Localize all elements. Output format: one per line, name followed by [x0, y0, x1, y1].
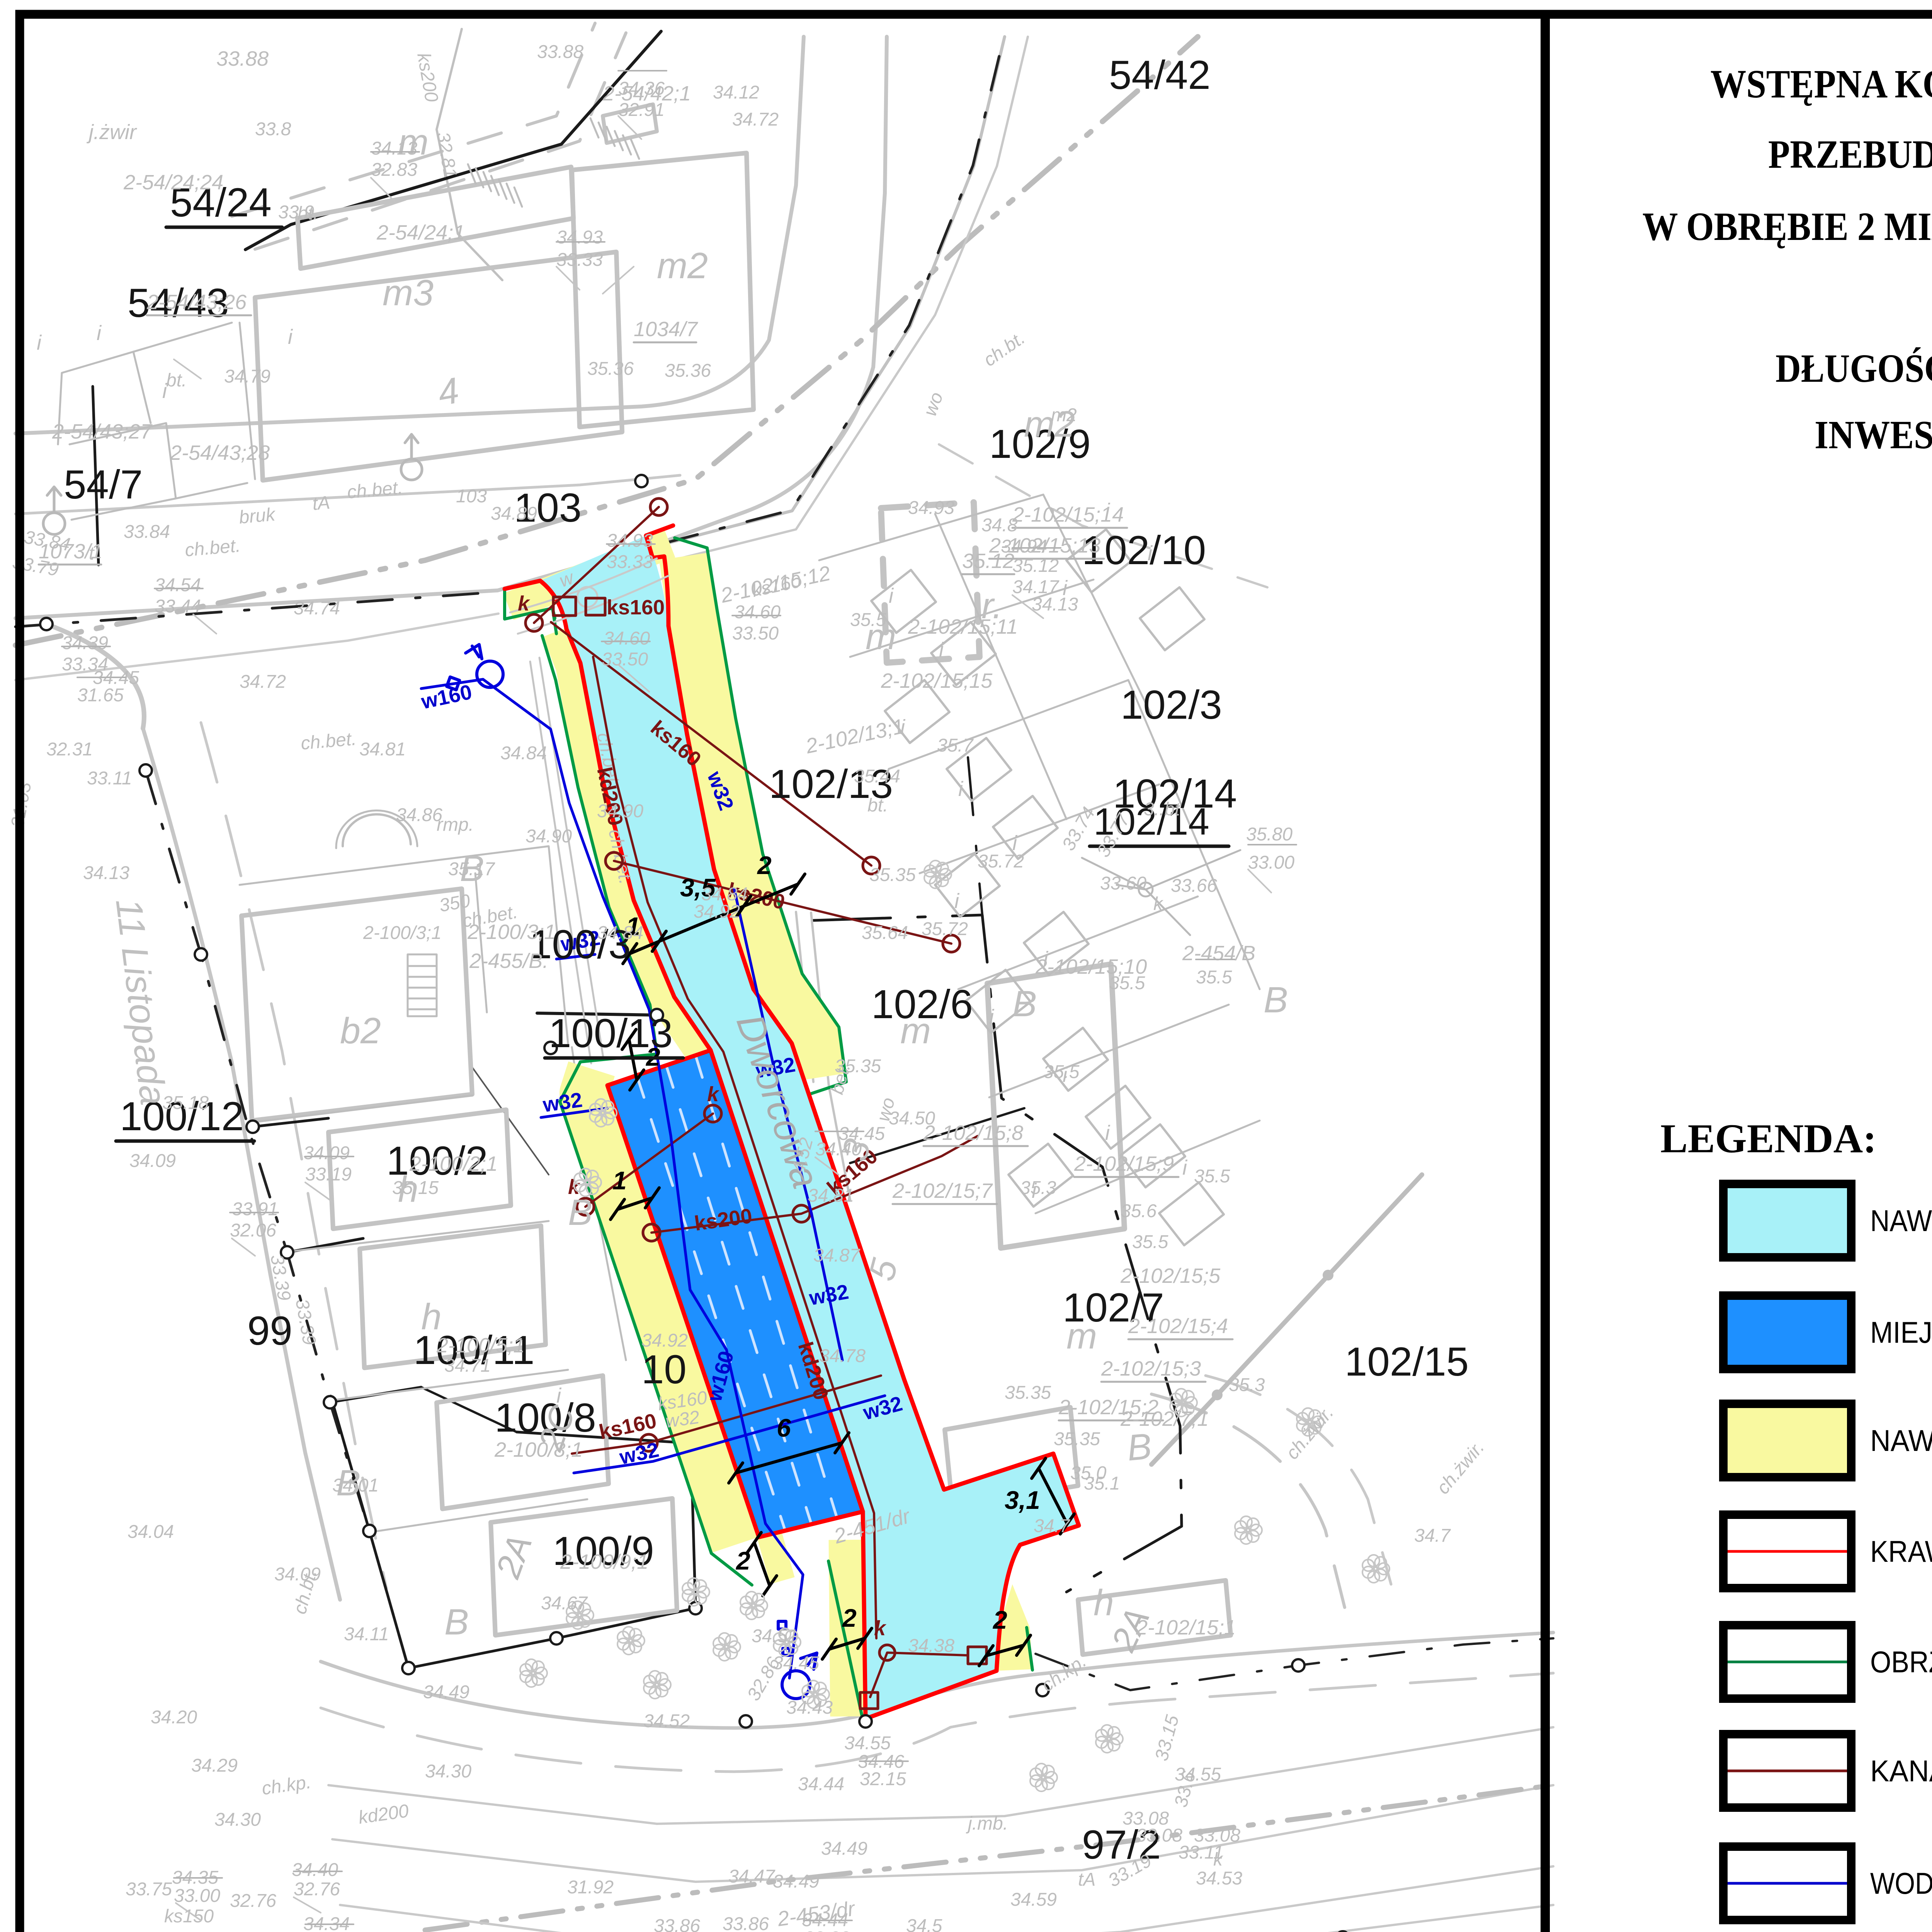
svg-text:33.08: 33.08 — [1136, 1825, 1182, 1846]
svg-text:35.35: 35.35 — [835, 1056, 881, 1077]
svg-text:34.87: 34.87 — [813, 1245, 861, 1266]
svg-text:i: i — [1063, 577, 1068, 600]
svg-text:33.66: 33.66 — [1171, 876, 1217, 896]
svg-text:102/3: 102/3 — [1121, 682, 1222, 728]
svg-text:WODOCIĄG: WODOCIĄG — [1870, 1866, 1932, 1900]
svg-text:33.91: 33.91 — [232, 1199, 278, 1219]
svg-text:34.55: 34.55 — [1175, 1764, 1221, 1785]
svg-text:34.09: 34.09 — [129, 1151, 176, 1171]
svg-text:102/15: 102/15 — [1345, 1339, 1469, 1384]
svg-text:35.12: 35.12 — [1012, 556, 1059, 576]
svg-text:m: m — [900, 1010, 931, 1051]
svg-text:i: i — [954, 889, 960, 913]
svg-text:31.92: 31.92 — [567, 1877, 614, 1898]
svg-text:35.17: 35.17 — [448, 859, 495, 879]
svg-text:33.00: 33.00 — [1248, 852, 1294, 873]
svg-text:33.86: 33.86 — [723, 1914, 769, 1932]
svg-text:54/7: 54/7 — [64, 462, 143, 507]
svg-text:32.06: 32.06 — [230, 1220, 276, 1241]
svg-text:33.33: 33.33 — [607, 552, 653, 572]
svg-text:34.34: 34.34 — [303, 1914, 350, 1932]
svg-text:32.91: 32.91 — [618, 100, 665, 120]
svg-text:32.76: 32.76 — [294, 1879, 340, 1900]
svg-text:m2: m2 — [657, 245, 708, 286]
svg-text:34.92: 34.92 — [641, 1330, 688, 1351]
svg-text:KANALIZACJA DESZCZOWA: KANALIZACJA DESZCZOWA — [1870, 1754, 1932, 1788]
svg-text:2-102/15;11: 2-102/15;11 — [908, 615, 1018, 638]
svg-text:34.89: 34.89 — [491, 503, 537, 524]
svg-text:B: B — [568, 1192, 592, 1233]
svg-text:35.72: 35.72 — [922, 919, 968, 939]
svg-text:2-102/15;3: 2-102/15;3 — [1101, 1357, 1201, 1380]
svg-text:32.83: 32.83 — [371, 160, 417, 180]
svg-text:33.11: 33.11 — [87, 768, 132, 789]
svg-text:b2: b2 — [340, 1010, 381, 1051]
svg-text:33.00: 33.00 — [174, 1886, 220, 1906]
svg-text:2-54/24;1: 2-54/24;1 — [376, 221, 465, 244]
svg-text:35.64: 35.64 — [862, 923, 908, 943]
svg-text:34.29: 34.29 — [191, 1755, 238, 1776]
svg-text:33.88: 33.88 — [537, 42, 583, 62]
svg-text:34.13: 34.13 — [371, 138, 417, 159]
svg-text:35.36: 35.36 — [587, 359, 634, 379]
svg-text:35.35: 35.35 — [869, 865, 916, 885]
svg-text:33.44: 33.44 — [155, 596, 201, 617]
svg-text:34.38: 34.38 — [908, 1636, 954, 1656]
svg-text:34.49: 34.49 — [821, 1838, 867, 1859]
svg-text:34.93: 34.93 — [607, 531, 653, 551]
svg-text:k: k — [874, 1617, 887, 1640]
svg-text:32.15: 32.15 — [860, 1769, 906, 1789]
svg-text:34.04: 34.04 — [128, 1522, 174, 1542]
svg-text:i: i — [939, 638, 944, 662]
svg-text:2-100/9;1: 2-100/9;1 — [560, 1550, 648, 1573]
svg-text:2-102/7;1: 2-102/7;1 — [1120, 1407, 1209, 1430]
svg-text:2-454/B: 2-454/B — [1182, 942, 1255, 965]
svg-text:2-102/15;15: 2-102/15;15 — [881, 669, 993, 692]
svg-text:35.5: 35.5 — [1196, 967, 1232, 988]
svg-text:34.52: 34.52 — [643, 1711, 690, 1731]
svg-text:DŁUGOŚĆ DROGI OK. 65 METRÓW: DŁUGOŚĆ DROGI OK. 65 METRÓW — [1776, 346, 1932, 391]
svg-text:34.8: 34.8 — [981, 515, 1018, 536]
svg-text:2-100/8;1: 2-100/8;1 — [494, 1438, 583, 1461]
svg-text:2-54/43;26: 2-54/43;26 — [146, 291, 247, 314]
svg-text:2-102/15;5: 2-102/15;5 — [1120, 1264, 1221, 1287]
svg-text:m2: m2 — [1051, 405, 1077, 425]
svg-text:i: i — [989, 1005, 995, 1029]
svg-text:34.55: 34.55 — [844, 1733, 891, 1753]
svg-text:i: i — [1032, 1179, 1037, 1202]
svg-text:m3: m3 — [383, 272, 434, 313]
svg-text:35.5: 35.5 — [850, 610, 886, 630]
svg-text:33.60: 33.60 — [1100, 873, 1146, 894]
svg-text:114/3: 114/3 — [1360, 1930, 1459, 1932]
svg-text:35.80: 35.80 — [1246, 824, 1293, 845]
svg-text:1034/7: 1034/7 — [634, 318, 698, 341]
svg-text:bt.: bt. — [867, 795, 888, 816]
svg-text:i: i — [1063, 1063, 1068, 1087]
svg-text:B: B — [1264, 980, 1288, 1020]
svg-text:34.84: 34.84 — [597, 923, 643, 943]
svg-text:34.78: 34.78 — [819, 1346, 866, 1366]
svg-text:33.33: 33.33 — [556, 250, 603, 270]
svg-text:34.30: 34.30 — [425, 1761, 471, 1782]
svg-text:35.5: 35.5 — [1132, 1232, 1168, 1252]
svg-text:tA: tA — [1078, 1869, 1095, 1890]
svg-text:33.88: 33.88 — [216, 47, 269, 70]
svg-text:34.86: 34.86 — [396, 805, 442, 825]
svg-text:rmp.: rmp. — [437, 815, 474, 835]
svg-text:34.94: 34.94 — [1001, 536, 1047, 557]
svg-text:34.93: 34.93 — [556, 227, 603, 248]
svg-text:35.5: 35.5 — [1109, 973, 1145, 993]
svg-text:34.54: 34.54 — [155, 575, 201, 595]
svg-text:34.13: 34.13 — [83, 863, 129, 883]
svg-text:bruk: bruk — [238, 504, 277, 528]
svg-text:t: t — [89, 543, 95, 564]
svg-text:54/42: 54/42 — [1109, 53, 1211, 98]
svg-text:i: i — [889, 584, 894, 607]
svg-text:k: k — [1213, 1849, 1224, 1870]
svg-text:k: k — [707, 1083, 720, 1106]
svg-text:35.36: 35.36 — [665, 361, 711, 381]
svg-text:33.50: 33.50 — [602, 649, 648, 670]
svg-text:34.43: 34.43 — [786, 1697, 833, 1718]
svg-text:KRAWĘŻNIK DROGOWY: KRAWĘŻNIK DROGOWY — [1870, 1534, 1932, 1568]
svg-text:10: 10 — [641, 1347, 687, 1392]
svg-text:34.81: 34.81 — [359, 739, 406, 760]
svg-text:WSTĘPNA KONCEPCJA ZAKRESU ROBÓ: WSTĘPNA KONCEPCJA ZAKRESU ROBÓT — [1711, 62, 1932, 106]
svg-text:tA: tA — [311, 492, 331, 514]
svg-text:2-455/B.: 2-455/B. — [469, 949, 548, 973]
svg-text:ks150: ks150 — [164, 1906, 214, 1927]
svg-text:34.47: 34.47 — [728, 1866, 776, 1887]
svg-text:2-100/3;1: 2-100/3;1 — [363, 923, 442, 943]
svg-text:OBRZEŻE: OBRZEŻE — [1870, 1645, 1932, 1679]
svg-text:34.90: 34.90 — [597, 801, 643, 821]
svg-text:i: i — [1012, 832, 1018, 855]
svg-text:PRZEBUDOWA DROGI POŁOŻONEJ: PRZEBUDOWA DROGI POŁOŻONEJ — [1768, 132, 1932, 177]
svg-text:33.8: 33.8 — [255, 119, 291, 139]
svg-text:34.7: 34.7 — [1414, 1526, 1451, 1546]
svg-text:INWESTOR: GMINA SĘPOPOL: INWESTOR: GMINA SĘPOPOL — [1815, 413, 1932, 457]
svg-text:35.7: 35.7 — [937, 735, 974, 756]
svg-text:i: i — [37, 331, 42, 354]
svg-text:35.35: 35.35 — [1005, 1383, 1051, 1403]
svg-text:34.11: 34.11 — [344, 1624, 389, 1645]
svg-text:34.40: 34.40 — [815, 1139, 862, 1160]
svg-text:2-54/43;27: 2-54/43;27 — [52, 420, 153, 443]
svg-text:34.60: 34.60 — [734, 602, 781, 622]
svg-text:34.39: 34.39 — [62, 633, 108, 653]
svg-text:34.5: 34.5 — [906, 1916, 942, 1932]
svg-text:2-102/15;8: 2-102/15;8 — [923, 1121, 1023, 1145]
svg-text:35.3: 35.3 — [1229, 1375, 1265, 1395]
svg-text:33.84: 33.84 — [124, 522, 170, 542]
svg-text:ks160: ks160 — [607, 596, 665, 619]
svg-text:34.72: 34.72 — [240, 672, 286, 692]
svg-text:34.50: 34.50 — [889, 1108, 935, 1129]
svg-text:34.90: 34.90 — [526, 826, 572, 847]
svg-text:34.60: 34.60 — [604, 628, 650, 649]
svg-text:i: i — [288, 325, 293, 349]
svg-text:34.49: 34.49 — [423, 1682, 469, 1702]
svg-text:i: i — [162, 379, 168, 403]
svg-text:33.19: 33.19 — [305, 1164, 352, 1185]
svg-text:h: h — [1094, 1582, 1114, 1623]
svg-text:B: B — [444, 1602, 469, 1643]
svg-text:2-102/15;9: 2-102/15;9 — [1074, 1152, 1174, 1175]
svg-text:2: 2 — [757, 851, 772, 879]
svg-text:35.5: 35.5 — [1194, 1166, 1230, 1187]
svg-text:2-102/15;1: 2-102/15;1 — [1136, 1616, 1236, 1639]
svg-text:32.76: 32.76 — [230, 1891, 276, 1911]
svg-text:34.49: 34.49 — [773, 1871, 819, 1892]
svg-text:m: m — [1066, 1316, 1097, 1357]
svg-text:33.50: 33.50 — [732, 623, 779, 644]
svg-text:34.84: 34.84 — [701, 884, 748, 905]
svg-text:33.75: 33.75 — [126, 1879, 172, 1900]
svg-text:35.35: 35.35 — [1054, 1429, 1100, 1449]
svg-text:35.44: 35.44 — [854, 766, 900, 787]
svg-text:100/13: 100/13 — [549, 1011, 673, 1056]
svg-text:34.84: 34.84 — [500, 743, 547, 764]
svg-text:103: 103 — [456, 486, 487, 507]
svg-text:2-54/24;24: 2-54/24;24 — [123, 171, 223, 194]
svg-text:3,1: 3,1 — [1005, 1486, 1040, 1514]
svg-text:34.93: 34.93 — [908, 498, 954, 518]
svg-text:i: i — [1148, 542, 1153, 565]
svg-text:34.36: 34.36 — [618, 78, 665, 99]
svg-text:34.71: 34.71 — [444, 1355, 491, 1376]
svg-text:NAWIERZCHNIA CHODNIKA/OPASKI: NAWIERZCHNIA CHODNIKA/OPASKI — [1870, 1423, 1932, 1458]
svg-text:35.1: 35.1 — [1084, 1473, 1120, 1494]
svg-text:i: i — [97, 321, 102, 345]
svg-text:99: 99 — [247, 1308, 293, 1354]
svg-text:2-54/43;28: 2-54/43;28 — [170, 441, 270, 464]
svg-text:34.81: 34.81 — [808, 1185, 854, 1206]
svg-text:34.67: 34.67 — [541, 1593, 588, 1614]
svg-text:h: h — [421, 1296, 442, 1337]
svg-text:3..bt: 3..bt — [1144, 799, 1180, 820]
svg-text:LEGENDA:: LEGENDA: — [1660, 1116, 1877, 1161]
svg-text:34.44: 34.44 — [798, 1774, 844, 1794]
svg-text:6: 6 — [777, 1413, 791, 1442]
svg-text:B: B — [1012, 983, 1037, 1024]
svg-text:34.13: 34.13 — [1032, 594, 1078, 615]
svg-text:2: 2 — [735, 1546, 750, 1575]
svg-text:34.20: 34.20 — [151, 1707, 197, 1728]
svg-text:35.15: 35.15 — [580, 1930, 626, 1932]
svg-text:35.6: 35.6 — [1121, 1201, 1157, 1221]
svg-text:j.mb.: j.mb. — [966, 1813, 1008, 1834]
svg-text:34.72: 34.72 — [732, 109, 779, 130]
svg-text:i: i — [900, 716, 906, 739]
svg-text:j.żwir: j.żwir — [86, 121, 137, 144]
svg-text:34.74: 34.74 — [294, 598, 340, 619]
svg-text:35.3: 35.3 — [1020, 1178, 1056, 1198]
svg-text:34.12: 34.12 — [713, 82, 759, 103]
svg-text:i: i — [1105, 1121, 1111, 1145]
svg-text:k: k — [518, 592, 531, 615]
svg-text:35.18: 35.18 — [162, 1093, 209, 1113]
svg-text:32.31: 32.31 — [46, 739, 93, 760]
svg-text:32.22: 32.22 — [804, 1928, 850, 1932]
svg-text:B: B — [1126, 1426, 1153, 1469]
svg-text:i: i — [1105, 499, 1111, 522]
svg-text:33.86: 33.86 — [654, 1916, 700, 1932]
svg-text:bt.: bt. — [298, 203, 318, 224]
svg-text:NAWIERZCHNIA DROGI: NAWIERZCHNIA DROGI — [1870, 1204, 1932, 1238]
svg-text:35.5: 35.5 — [1043, 1062, 1080, 1082]
svg-text:i: i — [1182, 1156, 1188, 1179]
svg-text:MIEJSCA POSTOJOWE: MIEJSCA POSTOJOWE — [1870, 1315, 1932, 1349]
svg-text:k: k — [1153, 894, 1164, 914]
svg-text:34.09: 34.09 — [303, 1143, 350, 1163]
svg-text:34.01: 34.01 — [332, 1475, 379, 1496]
svg-text:i: i — [1043, 947, 1049, 971]
svg-text:35.15: 35.15 — [392, 1178, 439, 1198]
svg-text:2-100/2;1: 2-100/2;1 — [409, 1152, 498, 1175]
svg-text:34.7: 34.7 — [1034, 1516, 1071, 1536]
svg-text:i: i — [556, 1384, 562, 1407]
svg-text:2-102/15;7: 2-102/15;7 — [892, 1179, 993, 1202]
svg-text:W OBRĘBIE 2 MIASTA SĘPOPOL, NA: W OBRĘBIE 2 MIASTA SĘPOPOL, NA DZIAŁKACH… — [1643, 204, 1932, 249]
svg-text:34.59: 34.59 — [1010, 1889, 1057, 1910]
svg-text:2-102/15;4: 2-102/15;4 — [1128, 1315, 1228, 1338]
svg-text:2: 2 — [992, 1605, 1007, 1634]
svg-text:bt.: bt. — [166, 370, 187, 391]
svg-text:34.40: 34.40 — [292, 1860, 338, 1880]
svg-text:100/10, 101, 102/15: 100/10, 101, 102/15 — [1930, 275, 1932, 320]
svg-text:2-100/5;1: 2-100/5;1 — [436, 1334, 525, 1357]
svg-text:35.72: 35.72 — [978, 851, 1024, 872]
svg-text:1: 1 — [612, 1166, 627, 1195]
svg-text:31.65: 31.65 — [77, 685, 124, 706]
svg-text:34.53: 34.53 — [1196, 1868, 1242, 1889]
svg-text:34.09: 34.09 — [274, 1564, 321, 1585]
svg-text:2: 2 — [842, 1604, 857, 1632]
svg-text:i: i — [958, 777, 964, 801]
svg-text:34.30: 34.30 — [214, 1810, 261, 1830]
svg-text:34.51: 34.51 — [752, 1626, 798, 1646]
svg-text:34.79: 34.79 — [224, 366, 270, 387]
